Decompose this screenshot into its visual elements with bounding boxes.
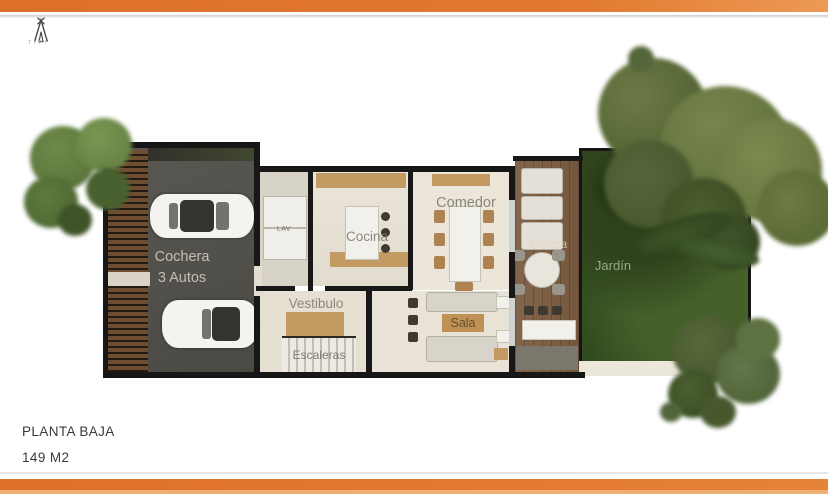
room-label-cocina: Cocina xyxy=(322,229,412,244)
console-table xyxy=(286,312,344,336)
plan-area: 149 M2 xyxy=(22,450,69,465)
side-table xyxy=(496,296,510,309)
dining-chair xyxy=(434,210,445,223)
bar-stool xyxy=(538,306,548,315)
bottom-accent-bar-highlight xyxy=(0,490,828,494)
dining-table xyxy=(449,206,481,282)
page-top-edge xyxy=(0,15,828,18)
ottoman xyxy=(408,298,418,308)
ottoman xyxy=(408,332,418,342)
wall-cocina-comedor xyxy=(408,166,413,290)
wall-garage-house-lower xyxy=(254,296,260,378)
dining-chair xyxy=(434,233,445,246)
dining-chair xyxy=(434,256,445,269)
room-label-lav: LAV xyxy=(262,226,306,233)
room-label-cochera: Cochera 3 Autos xyxy=(130,247,234,289)
page-bottom-edge xyxy=(0,472,828,474)
tree-foliage xyxy=(700,396,736,428)
plan-title: PLANTA BAJA xyxy=(22,424,115,439)
wall-vestibulo-top-left xyxy=(256,286,295,291)
side-table xyxy=(496,330,510,343)
sideboard xyxy=(432,174,490,186)
tree-foliage xyxy=(736,318,780,360)
kitchen-stool xyxy=(381,212,390,221)
tree-foliage xyxy=(660,402,682,422)
car-rear-window xyxy=(169,203,178,229)
tree-foliage xyxy=(58,204,92,236)
tree-foliage xyxy=(76,118,132,172)
tree-foliage xyxy=(86,168,130,210)
kitchen-counter-top xyxy=(316,173,406,188)
tree-foliage xyxy=(628,46,654,72)
wall-terraza-top xyxy=(513,156,583,161)
lounge-chair xyxy=(521,168,563,194)
door-gap-garage xyxy=(254,266,262,296)
ottoman xyxy=(408,315,418,325)
wall-vestibulo-sala xyxy=(366,291,372,372)
slide-canvas: TIPI xyxy=(0,0,828,494)
wall-garage-house-upper xyxy=(254,142,260,266)
wall-house-top xyxy=(256,166,515,172)
room-label-cochera-line2: 3 Autos xyxy=(130,268,234,289)
bottom-accent-bar xyxy=(0,479,828,490)
sofa xyxy=(426,292,498,312)
side-table-wood xyxy=(494,348,508,360)
room-label-comedor: Comedor xyxy=(418,195,514,211)
kitchen-stool xyxy=(381,244,390,253)
car-windshield xyxy=(216,202,229,230)
dining-chair xyxy=(483,233,494,246)
room-label-sala: Sala xyxy=(441,316,485,330)
garage-roof-shadow xyxy=(148,148,256,161)
dining-chair xyxy=(483,210,494,223)
wall-lav-right xyxy=(308,166,313,291)
washer xyxy=(263,196,307,228)
sofa xyxy=(426,336,498,362)
car-windshield xyxy=(202,309,211,339)
bar-stool xyxy=(524,306,534,315)
car-top-view-2 xyxy=(162,300,258,348)
top-accent-bar xyxy=(0,0,828,12)
room-label-cochera-line1: Cochera xyxy=(130,247,234,268)
bar-table xyxy=(522,320,576,340)
car-glass-roof xyxy=(212,307,240,341)
sliding-glass-door-sala xyxy=(509,298,515,346)
dining-chair xyxy=(483,256,494,269)
dining-chair xyxy=(455,282,473,291)
car-top-view-1 xyxy=(150,194,254,238)
bar-stool xyxy=(552,306,562,315)
tree-foliage xyxy=(758,170,828,246)
lounge-chair xyxy=(521,196,563,220)
car-glass-roof xyxy=(180,200,214,232)
room-label-escaleras: Escaleras xyxy=(276,348,362,362)
room-label-vestibulo: Vestibulo xyxy=(266,296,366,311)
room-label-terraza: Terraza xyxy=(513,239,583,251)
room-label-jardin: Jardín xyxy=(558,258,668,273)
brand-name: TIPI xyxy=(24,40,72,46)
planter-box xyxy=(516,346,578,370)
patio-chair xyxy=(552,284,565,295)
